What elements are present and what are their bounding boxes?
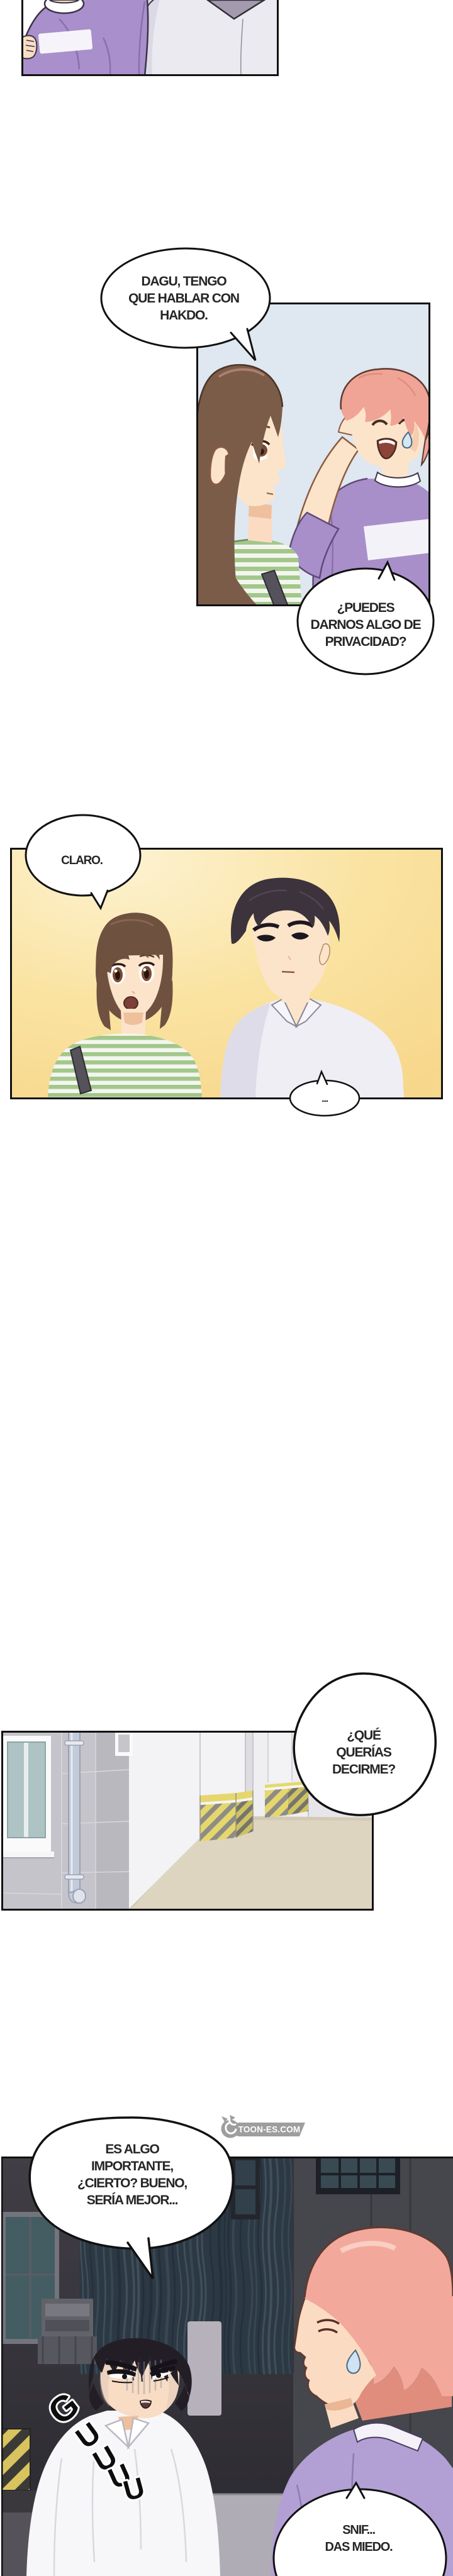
svg-text:DECIRME?: DECIRME? [332,1762,395,1777]
svg-text:CLARO.: CLARO. [61,854,103,867]
svg-text:...: ... [322,1094,328,1104]
svg-text:IMPORTANTE,: IMPORTANTE, [91,2159,173,2173]
svg-text:DAS MIEDO.: DAS MIEDO. [325,2540,393,2554]
svg-text:¿PUEDES: ¿PUEDES [337,601,395,615]
svg-text:¿QUÉ: ¿QUÉ [347,1728,381,1743]
svg-text:QUERÍAS: QUERÍAS [336,1745,391,1760]
svg-text:HAKDO.: HAKDO. [160,308,208,323]
svg-text:TOON-ES.COM: TOON-ES.COM [238,2125,301,2135]
svg-text:ES ALGO: ES ALGO [105,2142,159,2157]
svg-text:DAGU, TENGO: DAGU, TENGO [142,274,227,289]
svg-text:QUE HABLAR CON: QUE HABLAR CON [128,291,239,306]
svg-text:SERÍA MEJOR...: SERÍA MEJOR... [87,2193,178,2207]
svg-text:PRIVACIDAD?: PRIVACIDAD? [325,635,406,649]
svg-text:SNIF...: SNIF... [342,2523,375,2537]
svg-text:¿CIERTO? BUENO,: ¿CIERTO? BUENO, [77,2176,187,2190]
svg-text:DARNOS ALGO DE: DARNOS ALGO DE [311,618,422,632]
